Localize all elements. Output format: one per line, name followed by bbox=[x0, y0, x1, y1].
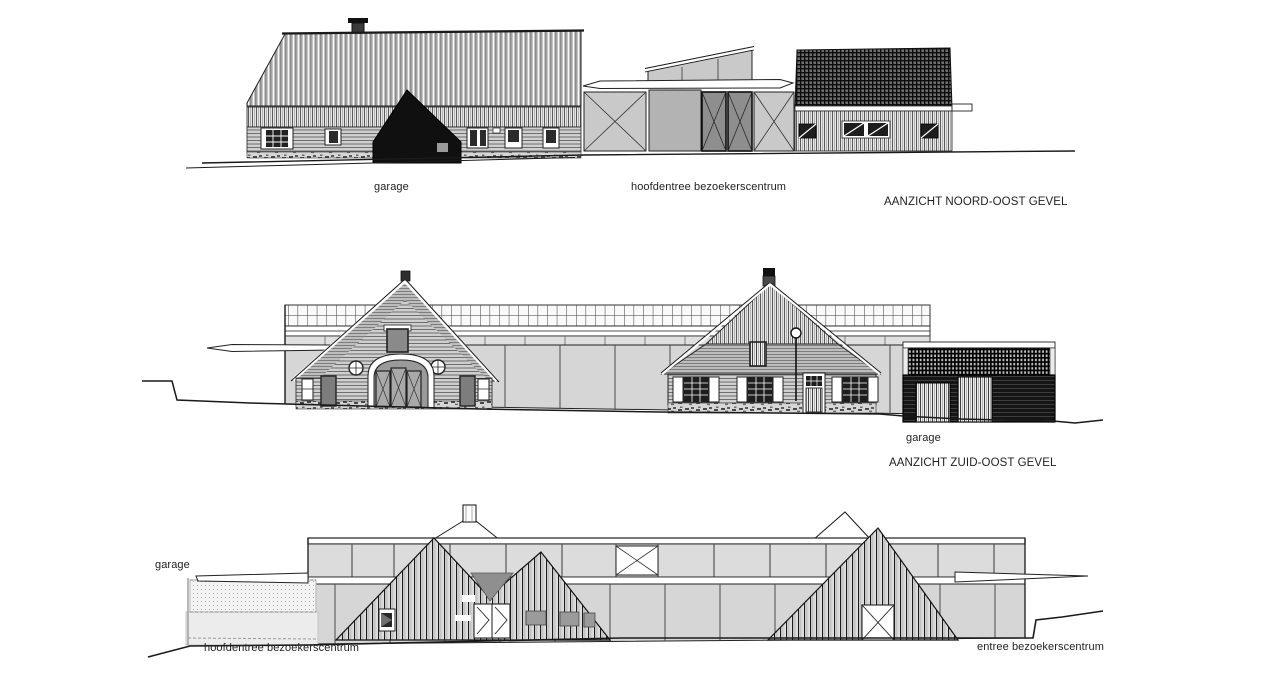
label-garage-entree: garage bbox=[155, 559, 190, 571]
white-patch bbox=[462, 595, 475, 602]
grey-window bbox=[584, 613, 595, 627]
barn-window bbox=[467, 128, 488, 148]
small-door bbox=[379, 609, 395, 631]
x-braced-door bbox=[862, 605, 894, 640]
side-building-window bbox=[799, 124, 816, 138]
elevation-sheet: garage hoofdentree bezoekerscentrum AANZ… bbox=[0, 0, 1280, 700]
garage-canopy bbox=[196, 573, 308, 583]
side-building bbox=[795, 48, 972, 151]
round-window bbox=[431, 360, 445, 374]
elevation-zuid-oost-drawing bbox=[142, 268, 1103, 423]
grey-window bbox=[526, 611, 546, 625]
canopy-blade-left bbox=[207, 345, 336, 352]
side-building-window bbox=[921, 124, 938, 138]
entrance-link bbox=[583, 47, 794, 152]
left-garage-block bbox=[186, 573, 318, 645]
shuttered-window bbox=[832, 377, 878, 402]
grey-window bbox=[560, 612, 579, 626]
shuttered-window bbox=[737, 377, 783, 402]
chevron-door bbox=[474, 604, 510, 638]
elevation-noord-oost-drawing bbox=[186, 18, 1075, 168]
farmhouse-door bbox=[803, 373, 825, 413]
label-garage-zuid-oost: garage bbox=[906, 432, 941, 444]
entrance-doors bbox=[702, 92, 752, 151]
shuttered-window bbox=[673, 377, 719, 402]
white-patch bbox=[455, 615, 471, 621]
label-main-entrance-noord-oost: hoofdentree bezoekerscentrum bbox=[631, 181, 786, 193]
arched-entrance bbox=[368, 354, 434, 407]
label-entrance-entree: entree bezoekerscentrum bbox=[977, 641, 1104, 653]
title-zuid-oost: AANZICHT ZUID-OOST GEVEL bbox=[889, 457, 1056, 469]
background-roof-outlines bbox=[434, 505, 872, 541]
dark-garage bbox=[903, 342, 1055, 422]
barn-window bbox=[261, 128, 293, 149]
side-building-window bbox=[842, 121, 890, 138]
title-noord-oost: AANZICHT NOORD-OOST GEVEL bbox=[884, 196, 1068, 208]
architectural-drawing bbox=[0, 0, 1280, 700]
barn-window bbox=[325, 129, 341, 145]
round-window bbox=[349, 361, 363, 375]
barn-window bbox=[543, 128, 559, 148]
label-garage-noord-oost: garage bbox=[374, 181, 409, 193]
elevation-entree-drawing bbox=[148, 505, 1103, 657]
label-main-entrance-entree: hoofdentree bezoekerscentrum bbox=[204, 642, 359, 654]
